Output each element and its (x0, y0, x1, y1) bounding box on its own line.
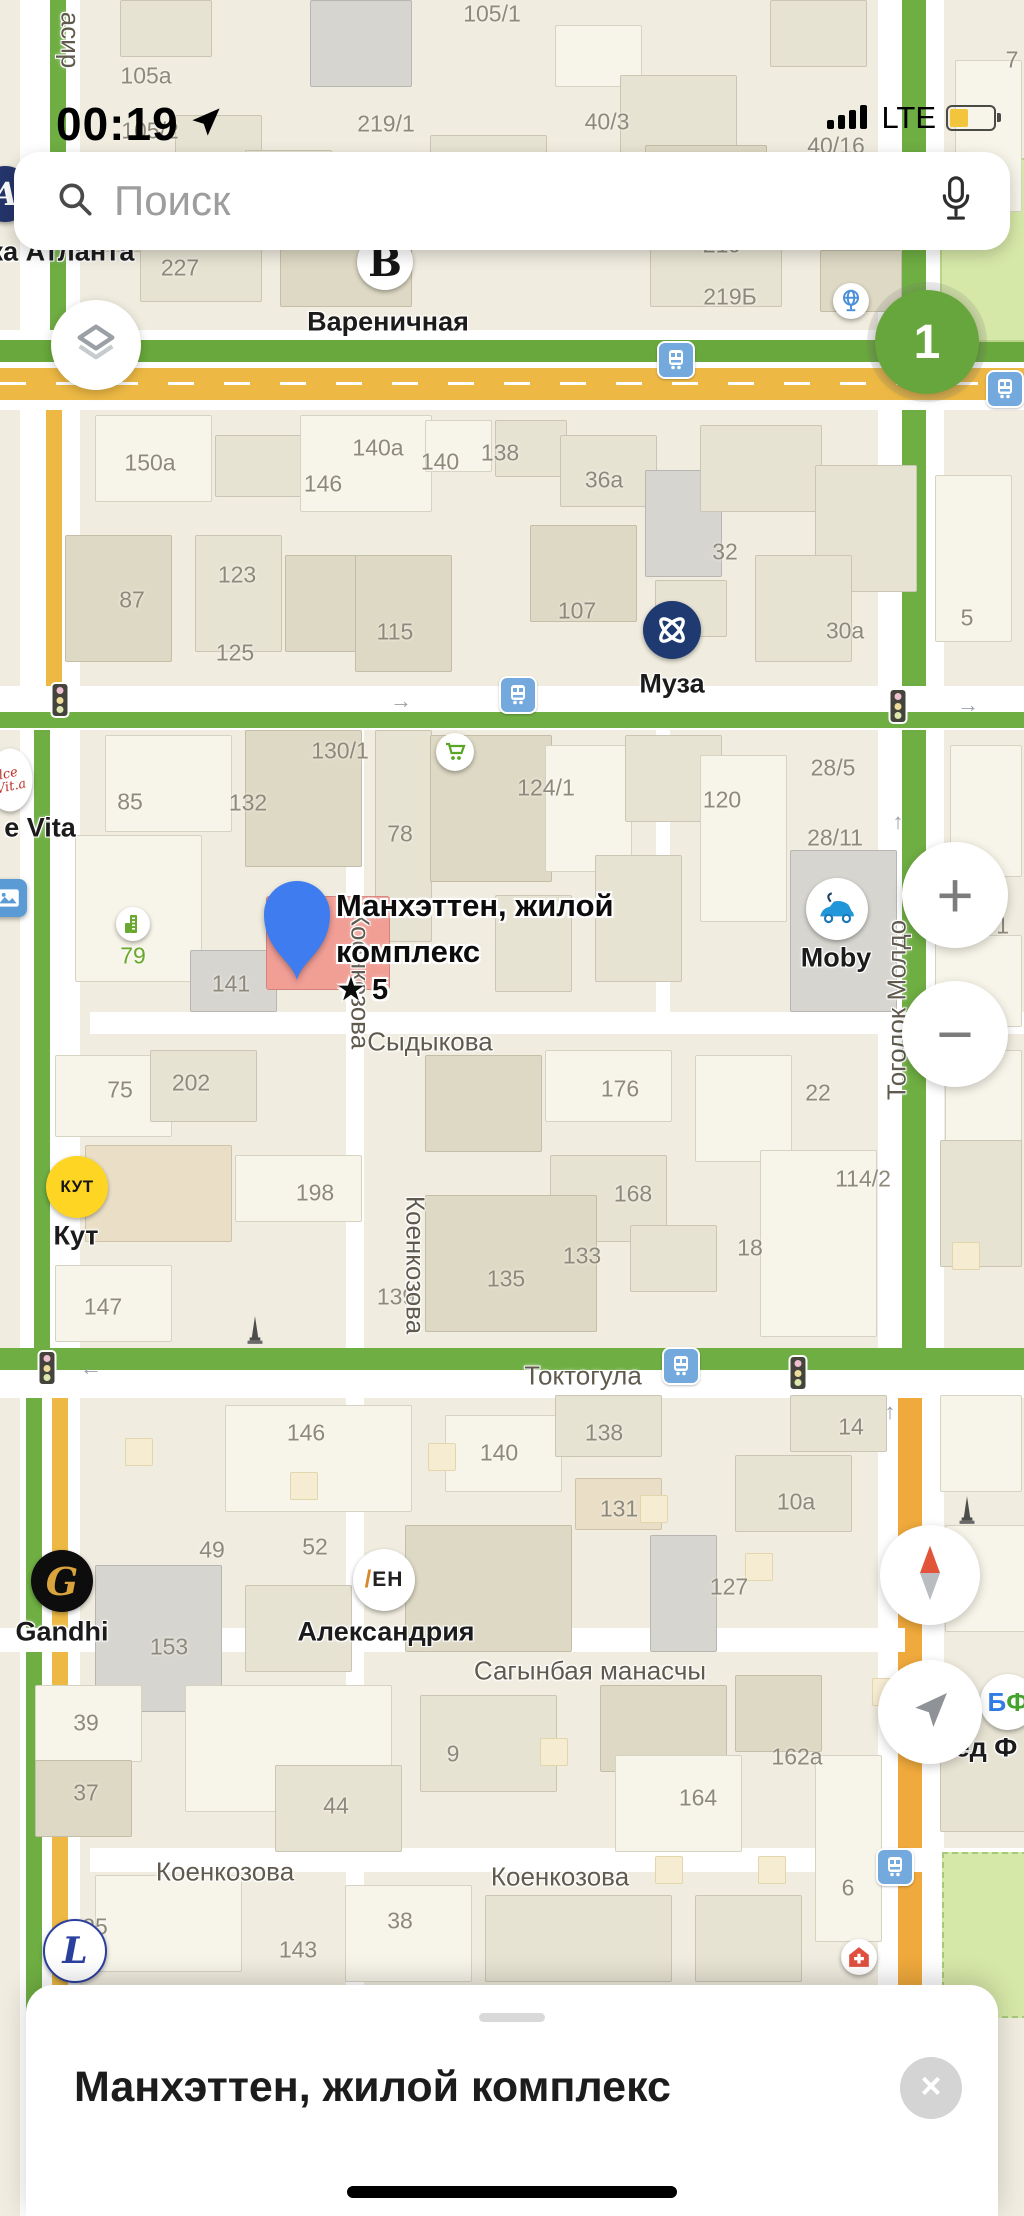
building-number: 38 (387, 1908, 413, 1935)
building (695, 1895, 802, 1982)
bus-stop-icon[interactable] (657, 341, 695, 379)
poi-marker-grocery[interactable] (436, 733, 474, 771)
poi-marker-l-club[interactable]: L (43, 1919, 107, 1983)
locate-me-button[interactable] (878, 1660, 982, 1764)
traffic-light-icon (38, 1350, 57, 1386)
building-number: 52 (302, 1534, 328, 1561)
building-number: 37 (73, 1780, 99, 1807)
building (485, 1895, 672, 1982)
building-number: 105a (120, 63, 171, 90)
building-number: 115 (377, 619, 414, 646)
building-number: 227 (161, 255, 199, 282)
building (95, 1875, 242, 1972)
bus-stop-icon[interactable] (876, 1848, 914, 1886)
building (630, 1225, 717, 1292)
building-number: 153 (150, 1634, 188, 1661)
building (655, 1856, 683, 1884)
street-label: Сыдыкова (367, 1027, 492, 1058)
poi-label-dolce-vita: e Vita (4, 813, 76, 844)
poi-marker-muza[interactable] (643, 601, 701, 659)
building-number: 138 (585, 1420, 623, 1447)
building (420, 1695, 557, 1792)
map-pin[interactable] (261, 858, 333, 985)
building-icon (123, 913, 143, 935)
globe-icon (839, 288, 863, 314)
street-label: Коенкозова (491, 1862, 629, 1893)
building (700, 755, 787, 922)
locate-arrow-icon (904, 1684, 956, 1741)
signal-bars-icon (827, 101, 871, 136)
building-number: 6 (842, 1875, 855, 1902)
letter-l-script-icon: L (62, 1930, 87, 1972)
building-number: 132 (229, 790, 267, 817)
dolce-icon: lceVit.a (0, 764, 28, 796)
building-number: 147 (84, 1294, 122, 1321)
building-number: 114/2 (835, 1166, 891, 1193)
building-number: 123 (218, 562, 256, 589)
building-number: 135 (487, 1266, 525, 1293)
building-number: 140a (352, 435, 403, 462)
building-number: 140 (480, 1440, 518, 1467)
poi-marker-kut[interactable]: КУТ (46, 1156, 108, 1218)
building-number: 7 (1006, 47, 1019, 74)
building (940, 1395, 1022, 1492)
route-count-button[interactable]: 1 (875, 290, 979, 394)
layers-button[interactable] (51, 300, 141, 390)
letter-g-script-icon: G (46, 1559, 78, 1604)
building-number: 141 (212, 971, 250, 998)
poi-label-kut: Кут (53, 1221, 98, 1252)
building-number: 138 (481, 440, 519, 467)
poi-marker-monument-2[interactable] (957, 1494, 977, 1526)
building (195, 535, 282, 652)
building (640, 1495, 668, 1523)
one-way-arrow: ↑ (893, 809, 904, 835)
traffic-light-icon (51, 682, 70, 718)
one-way-arrow: → (957, 692, 979, 718)
search-icon (54, 178, 96, 225)
building-number: 107 (558, 598, 596, 625)
traffic-light-icon (889, 688, 908, 724)
traffic-light-icon (789, 1355, 808, 1391)
building-number: 140 (421, 449, 459, 476)
building (745, 1553, 773, 1581)
building (755, 555, 852, 662)
street-label: Сагынбая манасчы (474, 1656, 706, 1687)
building-number: 10a (777, 1489, 815, 1516)
building (650, 1535, 717, 1652)
building-number: 146 (287, 1420, 325, 1447)
building-number: 87 (119, 587, 145, 614)
bus-stop-icon[interactable] (662, 1347, 700, 1385)
compass-button[interactable] (880, 1525, 980, 1625)
building-number: 9 (447, 1741, 460, 1768)
one-way-arrow: → (390, 688, 412, 714)
building (815, 1755, 882, 1942)
building-number: 18 (737, 1235, 763, 1262)
street-label: Коенкозова (400, 1196, 431, 1334)
selected-place-name-line1: Манхэттен, жилой (336, 888, 614, 924)
building (310, 0, 412, 87)
poi-marker-gallery[interactable] (0, 879, 27, 917)
building (355, 555, 452, 672)
car-icon (816, 891, 858, 927)
building-number: 44 (323, 1793, 349, 1820)
building-number: 30a (826, 618, 864, 645)
building-number: 120 (703, 787, 741, 814)
zoom-in-button[interactable]: + (902, 842, 1008, 948)
location-arrow-icon (189, 105, 223, 144)
building-number: 49 (199, 1537, 225, 1564)
building-number: 198 (296, 1180, 334, 1207)
building-number: 28/5 (811, 755, 856, 782)
building (758, 1856, 786, 1884)
building-number: 131 (600, 1496, 638, 1523)
building (120, 0, 212, 57)
bottom-sheet[interactable]: Манхэттен, жилой комплекс × (26, 1985, 998, 2216)
bottom-sheet-title: Манхэттен, жилой комплекс (74, 2063, 671, 2112)
layers-icon (71, 318, 121, 373)
building-number: 36a (585, 467, 623, 494)
building (428, 1443, 456, 1471)
building-number: 78 (387, 821, 413, 848)
home-indicator[interactable] (347, 2186, 677, 2198)
building-number: 164 (679, 1785, 717, 1812)
building-number: 146 (304, 471, 342, 498)
poi-marker-alexandria[interactable]: /ЕН (353, 1549, 415, 1611)
status-time: 00:19 (56, 97, 179, 151)
picture-icon (0, 884, 22, 912)
building-number: 39 (73, 1710, 99, 1737)
sheet-drag-handle[interactable] (479, 2013, 545, 2022)
building-number: 32 (712, 539, 738, 566)
building-number: 105/1 (463, 1, 521, 28)
building (290, 1472, 318, 1500)
street-label: Токтогула (524, 1361, 642, 1392)
poi-marker-pharmacy[interactable] (841, 1939, 877, 1975)
one-way-arrow: ↑ (885, 1399, 896, 1425)
med-cross-icon (847, 1945, 871, 1969)
building-number: 202 (172, 1070, 210, 1097)
building-number: 127 (710, 1574, 748, 1601)
map-canvas[interactable]: Манхэттен, жилой комплекс ★ 5 105/140/34… (0, 0, 1024, 2216)
route-count-label: 1 (914, 315, 941, 370)
building (425, 1055, 542, 1152)
poi-label-alexandria: Александрия (297, 1617, 474, 1648)
poi-label-moby: Moby (801, 943, 872, 974)
selected-place-name-line2: комплекс (336, 934, 480, 970)
building-number: 124/1 (517, 775, 575, 802)
selected-place-rating: ★ 5 (338, 972, 388, 1007)
building (695, 1055, 792, 1162)
building (770, 0, 867, 67)
building (700, 425, 822, 512)
building-number: 79 (120, 943, 146, 970)
poi-label-muza: Муза (639, 669, 704, 700)
building (540, 1738, 568, 1766)
bus-stop-icon[interactable] (499, 676, 537, 714)
poi-label-varenichnaya: Вареничная (307, 307, 469, 338)
app-screen: Манхэттен, жилой комплекс ★ 5 105/140/34… (0, 0, 1024, 2216)
building-number: 22 (805, 1080, 831, 1107)
cart-icon (443, 740, 467, 764)
bf-letters-icon: Б (988, 1687, 1007, 1718)
building-number: 85 (117, 789, 143, 816)
compass-needle-icon (910, 1543, 950, 1608)
building (545, 745, 632, 872)
street-label: асир (55, 12, 86, 68)
status-bar: 00:19 LTE (0, 96, 1024, 152)
building-number: 125 (216, 640, 254, 667)
building-number: 28/11 (807, 825, 863, 852)
building (735, 1675, 822, 1752)
close-icon: × (920, 2065, 941, 2107)
search-bar[interactable]: Поиск (14, 152, 1010, 250)
poi-marker-moby[interactable] (806, 878, 868, 940)
street-label: Коенкозова (156, 1857, 294, 1888)
poi-marker-globe-poi[interactable] (833, 283, 869, 319)
building (125, 1438, 153, 1466)
poi-marker-gandhi[interactable]: G (31, 1550, 93, 1612)
building-number: 168 (614, 1181, 652, 1208)
kut-text-icon: КУТ (60, 1177, 93, 1197)
building-number: 5 (961, 605, 974, 632)
building-number: 130/1 (311, 738, 369, 765)
zoom-out-button[interactable]: − (902, 981, 1008, 1087)
poi-marker-building-79[interactable] (116, 907, 150, 941)
building (952, 1242, 980, 1270)
search-input[interactable]: Поиск (114, 177, 938, 225)
building-number: 150a (124, 450, 175, 477)
network-type-label: LTE (881, 100, 936, 136)
building (215, 435, 307, 497)
microphone-icon[interactable] (938, 174, 974, 229)
poi-marker-monument-1[interactable] (245, 1314, 265, 1346)
poi-label-gandhi: Gandhi (16, 1617, 109, 1648)
building-number: 176 (601, 1076, 639, 1103)
building-number: 162a (771, 1744, 822, 1771)
en-logo-icon: / (365, 1566, 372, 1594)
building-number: 133 (563, 1243, 601, 1270)
building-number: 143 (279, 1937, 317, 1964)
one-way-arrow: ← (80, 1355, 102, 1381)
building-number: 14 (838, 1414, 864, 1441)
battery-icon (946, 105, 996, 131)
building-number: 219Б (703, 284, 756, 311)
close-button[interactable]: × (900, 2057, 962, 2119)
building-number: 75 (107, 1077, 133, 1104)
knot-icon (651, 609, 693, 651)
bus-stop-icon[interactable] (986, 370, 1024, 408)
building (105, 735, 232, 832)
